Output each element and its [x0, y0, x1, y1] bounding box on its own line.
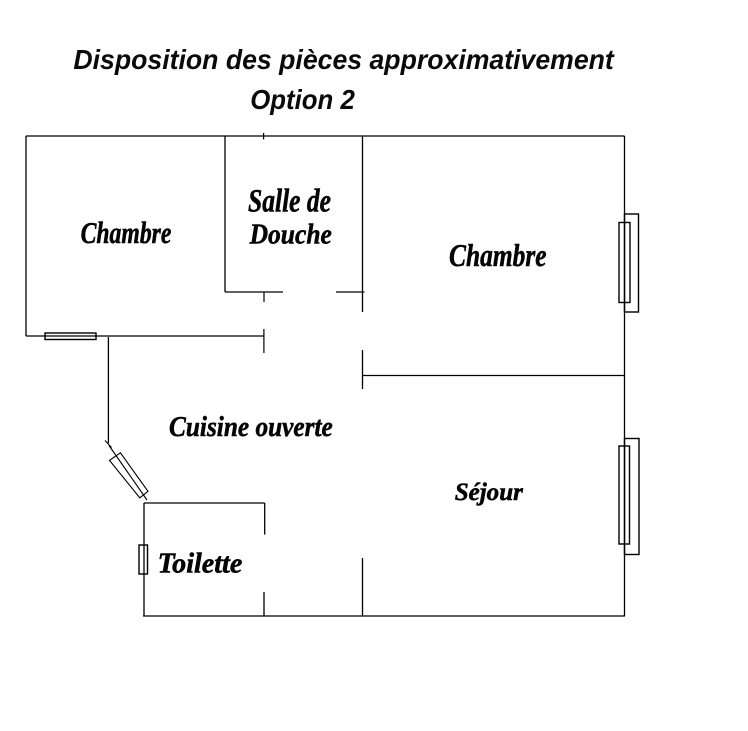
svg-text:Chambre: Chambre [449, 237, 547, 273]
svg-text:Toilette: Toilette [158, 548, 243, 579]
svg-text:Chambre: Chambre [81, 215, 172, 250]
svg-text:Séjour: Séjour [455, 479, 523, 506]
svg-text:Douche: Douche [249, 219, 332, 251]
svg-text:Cuisine ouverte: Cuisine ouverte [169, 412, 333, 443]
svg-text:Option 2: Option 2 [250, 84, 355, 115]
svg-text:Salle de: Salle de [248, 184, 331, 220]
svg-text:Disposition des pièces approxi: Disposition des pièces approximativement [73, 44, 615, 75]
